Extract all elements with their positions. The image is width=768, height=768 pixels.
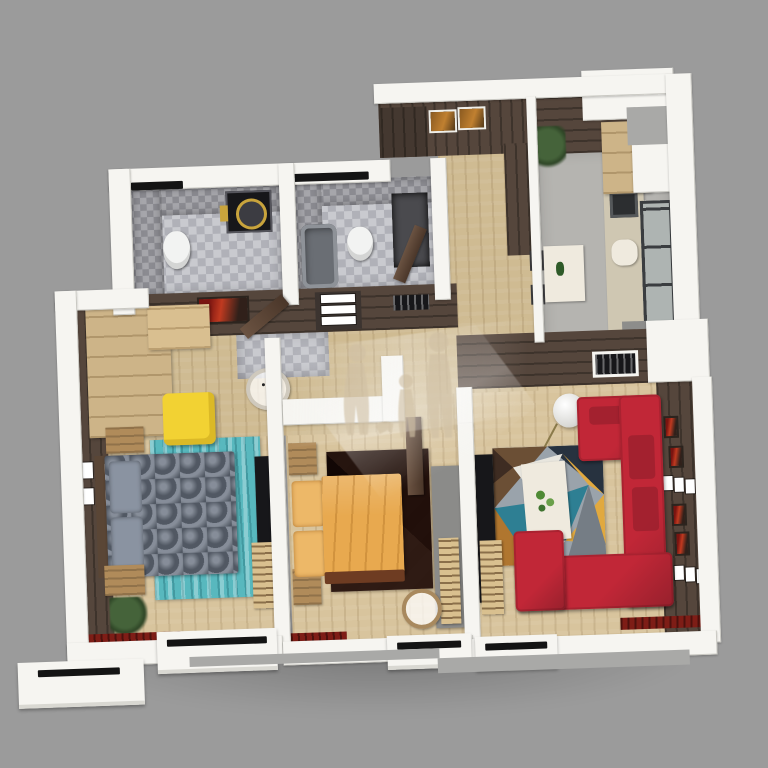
bathroom-wc-wall-tiles-left: [131, 188, 165, 297]
window-sill-a: [18, 659, 146, 709]
sofa-cushion-1: [628, 435, 656, 480]
kitchen-sink: [609, 191, 638, 218]
entry-art-frame-1: [431, 111, 456, 131]
washer-gold-detail: [220, 205, 229, 221]
bedroom-left-plant: [109, 596, 148, 637]
nightstand-left-bottom: [104, 564, 145, 595]
living-media-cabinet: [480, 540, 505, 615]
kitchen-plant: [535, 126, 567, 173]
nightstand-left-top: [105, 426, 144, 453]
hall-drawer-2: [321, 305, 355, 314]
bottle-on-table: [556, 262, 564, 276]
living-frame-6a: [675, 566, 684, 580]
window-sill-b: [157, 628, 278, 674]
wall-jog-kitchen-living: [646, 319, 710, 383]
watermark-family-silhouette: [298, 325, 524, 503]
hall-drawer-1: [321, 294, 355, 303]
hall-vent-grille: [393, 294, 430, 310]
watermark-woman-head: [348, 344, 367, 363]
accent-frame-3: [83, 488, 94, 504]
living-frame-4: [673, 506, 685, 524]
living-frame-3a: [663, 476, 672, 490]
hall-drawer-3: [322, 316, 356, 325]
floor-plan-render: [0, 0, 768, 768]
living-frame-6b: [686, 567, 695, 581]
accent-frame-1: [83, 462, 94, 478]
watermark-dog: [375, 421, 393, 434]
bedroom-left-wardrobe-top: [147, 304, 210, 350]
bathtub: [300, 224, 338, 289]
living-frame-5: [676, 534, 688, 554]
apartment-plan: [0, 0, 768, 768]
living-vent-grille: [595, 353, 636, 374]
living-frame-3c: [686, 479, 695, 493]
washing-machine: [225, 190, 272, 234]
living-frame-2: [670, 448, 682, 466]
orange-pillow-2: [293, 530, 327, 577]
gray-pillow-1: [109, 461, 143, 514]
sofa-cushion-2: [632, 487, 660, 532]
dining-table: [543, 245, 585, 302]
yellow-pouf: [162, 392, 216, 446]
entry-art-frame-2: [459, 108, 484, 128]
living-frame-1: [665, 418, 677, 436]
gray-pillow-2: [110, 517, 144, 570]
living-frame-3b: [674, 478, 683, 492]
bedroom-mid-wardrobe-wood-door: [438, 537, 461, 624]
sofa-chaise: [513, 530, 566, 612]
coffee-machine: [611, 239, 638, 266]
entry-cabinet: [380, 106, 428, 158]
